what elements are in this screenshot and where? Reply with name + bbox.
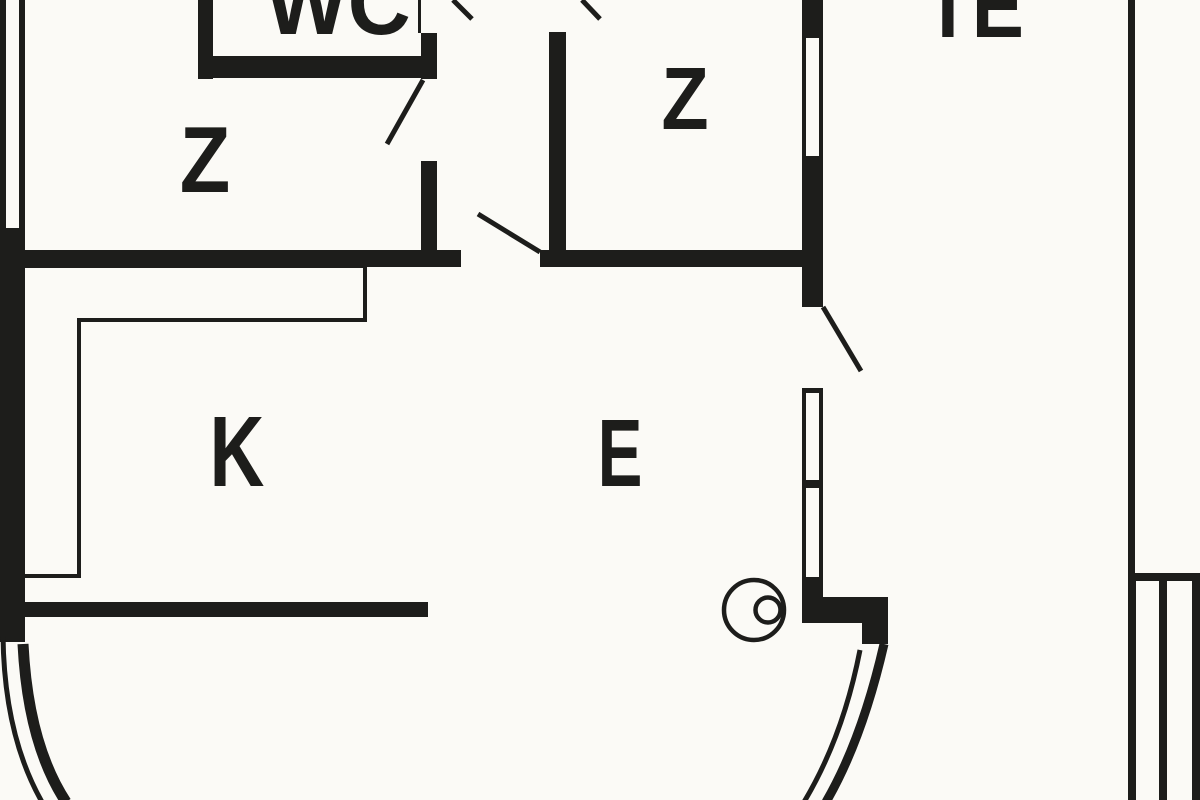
hall-left-wall-upper	[421, 33, 437, 79]
right-wall-mid	[802, 156, 823, 307]
kitchen-counter-top-line	[25, 265, 367, 268]
kitchen-counter-left-line	[77, 318, 81, 578]
terrace-step-left-line	[1128, 573, 1136, 800]
wc-bottom-wall	[198, 56, 424, 78]
wc-hall-door-leaf	[387, 80, 423, 144]
kitchen-counter-bottom-line	[25, 574, 81, 578]
terrace-edge-line	[1128, 0, 1135, 574]
left-wall-window-inner-line	[19, 0, 25, 232]
room-label-wc: WC	[265, 0, 411, 49]
round-fixture-icon	[724, 580, 784, 640]
bedroom2-left-wall	[549, 32, 566, 267]
bedroom2-door-leaf	[582, 0, 600, 19]
left-wall-window-outer-line	[0, 0, 6, 232]
main-wall-right-segment	[540, 250, 823, 267]
hall-door-leaf	[478, 214, 540, 252]
room-label-entry: E	[598, 406, 643, 502]
floorplan: WC Z Z K E TE	[0, 0, 1200, 800]
right-wall-window2-divider	[802, 480, 823, 488]
terrace-step-right-line	[1192, 577, 1200, 800]
door-leaves	[387, 0, 861, 371]
right-wall-window1-left-line	[802, 36, 806, 158]
round-fixture-inner-circle	[756, 598, 781, 623]
terrace-door-leaf	[823, 307, 861, 371]
curved-wall-right-inner-arc	[804, 650, 860, 800]
terrace-step-mid-line	[1159, 573, 1167, 800]
kitchen-counter-right-line	[363, 265, 367, 322]
right-wall-bottom-corner	[802, 577, 888, 644]
curved-walls	[3, 635, 884, 800]
kitchen-bottom-wall	[15, 602, 428, 617]
left-wall	[0, 228, 25, 642]
top-left-door-leaf	[453, 0, 472, 19]
right-wall-top-stub	[802, 0, 823, 38]
right-wall-window1-right-line	[819, 36, 823, 158]
room-label-terrace: TE	[924, 0, 1024, 52]
room-label-bedroom2: Z	[661, 55, 708, 143]
room-label-bedroom1: Z	[180, 113, 231, 207]
kitchen-counter-mid-line	[77, 318, 367, 322]
room-label-kitchen: K	[210, 402, 265, 502]
main-wall-left-segment	[0, 250, 461, 267]
door-frame-line	[418, 0, 421, 33]
